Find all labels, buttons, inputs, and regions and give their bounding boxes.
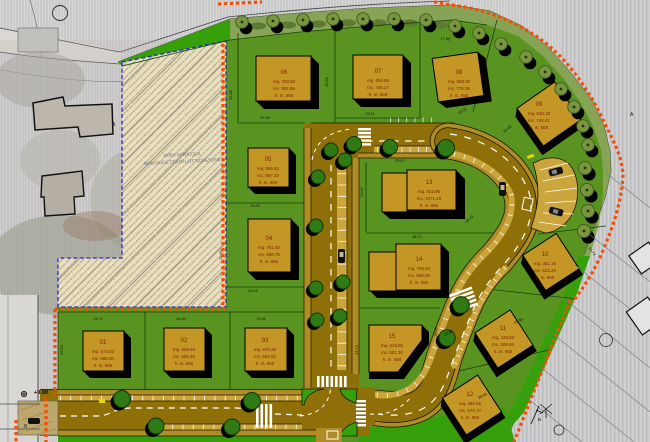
svg-text:+0.00: +0.00 — [34, 390, 48, 396]
svg-text:14: 14 — [416, 257, 423, 263]
svg-text:mc. 1071.49: mc. 1071.49 — [417, 196, 442, 201]
svg-text:09: 09 — [536, 102, 543, 108]
svg-text:13: 13 — [426, 180, 433, 186]
svg-text:05: 05 — [265, 157, 272, 163]
svg-text:23.00: 23.00 — [360, 187, 364, 197]
svg-text:mc. 776.28: mc. 776.28 — [448, 86, 470, 91]
svg-text:07: 07 — [375, 69, 382, 75]
svg-text:h. m. 650: h. m. 650 — [494, 349, 513, 354]
svg-text:31.86: 31.86 — [229, 90, 233, 100]
svg-text:25.11: 25.11 — [365, 112, 374, 116]
svg-text:04: 04 — [266, 236, 273, 242]
svg-text:mc. 574.73: mc. 574.73 — [459, 408, 481, 413]
svg-text:mq. 766.64: mq. 766.64 — [408, 266, 431, 271]
svg-text:24.40: 24.40 — [176, 317, 186, 321]
svg-text:mc. 892.59: mc. 892.59 — [273, 86, 295, 91]
svg-text:25.34: 25.34 — [60, 345, 64, 355]
svg-text:h. m. 650: h. m. 650 — [383, 357, 402, 362]
svg-text:mq. 518.55: mq. 518.55 — [381, 343, 404, 348]
svg-text:mq. 781.92: mq. 781.92 — [258, 245, 281, 250]
svg-text:h. m. 650: h. m. 650 — [530, 125, 549, 130]
svg-text:mq. 569.54: mq. 569.54 — [173, 347, 196, 352]
svg-text:h. m. 650: h. m. 650 — [259, 180, 278, 185]
svg-text:mq. 451.19: mq. 451.19 — [534, 261, 557, 266]
svg-text:h. m. 650: h. m. 650 — [420, 203, 439, 208]
svg-text:11: 11 — [500, 326, 507, 332]
svg-text:h. m. 650: h. m. 650 — [369, 92, 388, 97]
svg-text:25.26: 25.26 — [325, 77, 329, 87]
svg-text:01: 01 — [100, 340, 107, 346]
svg-text:74.51: 74.51 — [256, 317, 266, 321]
svg-text:h. m. 650: h. m. 650 — [256, 361, 275, 366]
svg-text:mc. 508.59: mc. 508.59 — [492, 342, 514, 347]
svg-text:23.39: 23.39 — [434, 327, 438, 337]
svg-text:06: 06 — [281, 70, 288, 76]
svg-text:24.13: 24.13 — [248, 289, 258, 293]
svg-text:02: 02 — [181, 338, 188, 344]
svg-text:38.71: 38.71 — [412, 235, 422, 239]
svg-text:h. m. 650: h. m. 650 — [175, 361, 194, 366]
svg-text:mq. 438.83: mq. 438.83 — [492, 335, 515, 340]
svg-text:32.08: 32.08 — [260, 116, 270, 120]
svg-text:h. m. 650: h. m. 650 — [275, 93, 294, 98]
svg-text:mq. 669.39: mq. 669.39 — [448, 79, 471, 84]
svg-text:mq. 923.95: mq. 923.95 — [418, 189, 441, 194]
svg-text:mc. 662.02: mc. 662.02 — [254, 354, 276, 359]
svg-text:h. m. 650: h. m. 650 — [536, 275, 555, 280]
svg-text:32.30: 32.30 — [219, 250, 223, 260]
svg-text:mc. 666.20: mc. 666.20 — [92, 356, 114, 361]
svg-text:h. m. 650: h. m. 650 — [461, 415, 480, 420]
svg-text:mq. 495.59: mq. 495.59 — [459, 401, 482, 406]
svg-text:15: 15 — [389, 334, 396, 340]
svg-text:24.14: 24.14 — [355, 345, 359, 355]
svg-text:24.71: 24.71 — [93, 317, 103, 321]
svg-text:h. m. 650: h. m. 650 — [94, 363, 113, 368]
svg-text:mc. 889.06: mc. 889.06 — [408, 273, 430, 278]
svg-text:03: 03 — [262, 338, 269, 344]
svg-text:B: B — [538, 417, 541, 422]
svg-text:mq. 570.36: mq. 570.36 — [254, 347, 277, 352]
svg-text:23.62: 23.62 — [250, 204, 260, 208]
svg-text:mq. 566.62: mq. 566.62 — [257, 166, 280, 171]
svg-text:h. m. 650: h. m. 650 — [450, 93, 469, 98]
svg-text:mq. 768.68: mq. 768.68 — [273, 79, 296, 84]
svg-text:mc. 765.27: mc. 765.27 — [367, 85, 389, 90]
svg-text:mc. 906.78: mc. 906.78 — [258, 252, 280, 257]
svg-text:mc. 660.49: mc. 660.49 — [173, 354, 195, 359]
svg-text:10: 10 — [542, 252, 549, 258]
svg-text:mq. 640.18: mq. 640.18 — [528, 111, 551, 116]
svg-text:mc. 523.24: mc. 523.24 — [534, 268, 556, 273]
svg-text:h. m. 650: h. m. 650 — [410, 280, 429, 285]
svg-text:h. m. 650: h. m. 650 — [260, 259, 279, 264]
svg-text:mq. 574.53: mq. 574.53 — [92, 349, 115, 354]
svg-text:mc. 742.41: mc. 742.41 — [528, 118, 550, 123]
svg-text:12: 12 — [467, 392, 474, 398]
svg-text:mc. 601.36: mc. 601.36 — [381, 350, 403, 355]
svg-text:mq. 659.89: mq. 659.89 — [367, 78, 390, 83]
svg-text:mc. 657.33: mc. 657.33 — [257, 173, 279, 178]
svg-text:08: 08 — [456, 70, 463, 76]
svg-text:29.07: 29.07 — [395, 159, 405, 163]
